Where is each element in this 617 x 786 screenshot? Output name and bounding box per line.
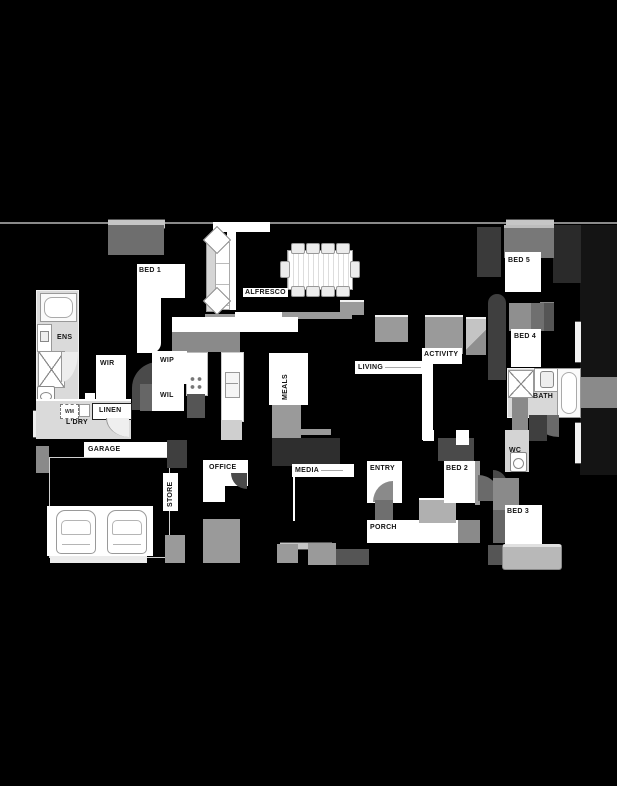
curved-wall bbox=[488, 294, 506, 380]
kitchen-overhead bbox=[172, 332, 240, 352]
wall-block bbox=[36, 446, 49, 473]
room-label-store: STORE bbox=[167, 482, 174, 508]
room-label-bed4: BED 4 bbox=[514, 333, 536, 340]
room-label-ldry: L'DRY bbox=[66, 419, 88, 426]
wall-block bbox=[167, 440, 187, 468]
room-label-media: MEDIA bbox=[292, 467, 319, 474]
wall-block bbox=[580, 225, 617, 475]
dining-chair bbox=[291, 286, 305, 297]
bed1-floor bbox=[137, 264, 161, 353]
pantry-bench bbox=[240, 317, 298, 332]
room-label-bed5: BED 5 bbox=[508, 257, 530, 264]
wall-block bbox=[553, 225, 581, 283]
window-block bbox=[375, 315, 408, 342]
label-leader-line bbox=[385, 367, 421, 368]
bench-block bbox=[308, 543, 336, 565]
wall-block bbox=[458, 520, 480, 543]
label-leader-line bbox=[321, 470, 343, 471]
bathtub bbox=[557, 368, 581, 418]
washing-machine: WM bbox=[60, 404, 79, 419]
room-label-ens: ENS bbox=[57, 334, 72, 341]
car bbox=[56, 510, 96, 554]
dining-chair bbox=[291, 243, 305, 254]
ldry-bench bbox=[79, 404, 90, 417]
room-label-bed3: BED 3 bbox=[507, 508, 529, 515]
room-label-bath: BATH bbox=[533, 393, 553, 400]
room-label-office: OFFICE bbox=[209, 464, 236, 471]
kitchen-bench bbox=[172, 317, 240, 332]
dining-chair bbox=[280, 261, 290, 278]
window bbox=[575, 422, 581, 464]
wall-block bbox=[488, 545, 502, 565]
door-swing-dark bbox=[231, 473, 247, 489]
washing-machine-label: WM bbox=[65, 409, 74, 415]
media-wall-line bbox=[293, 477, 295, 521]
wall-patch bbox=[456, 430, 469, 445]
dining-chair bbox=[336, 243, 350, 254]
dining-chair bbox=[306, 243, 320, 254]
room-label-entry: ENTRY bbox=[370, 465, 395, 472]
bathtub bbox=[40, 293, 77, 322]
dining-table bbox=[287, 250, 353, 290]
dining-chair bbox=[350, 261, 360, 278]
office-desk bbox=[203, 519, 240, 563]
island-sink-divider bbox=[225, 383, 238, 384]
room-label-bed2: BED 2 bbox=[446, 465, 468, 472]
media-shelf bbox=[295, 429, 331, 435]
island-sink bbox=[225, 372, 240, 398]
toilet bbox=[510, 452, 527, 472]
wip-floor bbox=[152, 351, 187, 384]
bed bbox=[502, 544, 562, 570]
bath-basin bbox=[540, 371, 554, 388]
room-label-porch: PORCH bbox=[370, 524, 397, 531]
room-label-activity: ACTIVITY bbox=[424, 351, 458, 358]
cooktop-burners bbox=[188, 374, 204, 392]
wall-block bbox=[529, 415, 547, 441]
garage-apron bbox=[50, 556, 147, 563]
wall-patch bbox=[423, 430, 434, 441]
room-label-wip: WIP bbox=[160, 357, 174, 364]
island-ext bbox=[221, 420, 242, 440]
window-block bbox=[340, 300, 364, 315]
living-label-strip: LIVING bbox=[355, 361, 433, 374]
bench-block bbox=[277, 544, 298, 563]
window-block-light bbox=[466, 317, 486, 355]
window bbox=[575, 321, 581, 363]
dining-chair bbox=[321, 243, 335, 254]
dining-chair bbox=[321, 286, 335, 297]
shower bbox=[508, 370, 534, 398]
wall-block bbox=[140, 384, 152, 411]
room-label-bed1: BED 1 bbox=[139, 267, 161, 274]
hall-floor bbox=[422, 364, 433, 440]
wall-block bbox=[477, 227, 501, 277]
room-label-wir: WIR bbox=[100, 360, 115, 367]
media-label-strip: MEDIA bbox=[292, 464, 354, 477]
room-label-living: LIVING bbox=[355, 364, 383, 371]
deck-band bbox=[580, 377, 617, 408]
floorplan-canvas: WM bbox=[0, 0, 617, 786]
wall-block bbox=[336, 549, 369, 565]
room-label-meals: MEALS bbox=[282, 374, 289, 400]
car bbox=[107, 510, 147, 554]
room-label-wc: WC bbox=[509, 447, 521, 454]
room-label-garage: GARAGE bbox=[88, 446, 121, 453]
room-label-linen: LINEN bbox=[99, 407, 122, 414]
room-label-wil: WIL bbox=[160, 392, 174, 399]
bench-block bbox=[165, 535, 185, 563]
dining-chair bbox=[336, 286, 350, 297]
wall-block bbox=[544, 303, 554, 331]
room-label-alfresco: ALFRESCO bbox=[243, 288, 288, 297]
dining-chair bbox=[306, 286, 320, 297]
bed1-headboard bbox=[108, 225, 164, 255]
media-couch bbox=[272, 438, 340, 466]
oven bbox=[187, 394, 205, 418]
ens-basin bbox=[40, 331, 49, 342]
